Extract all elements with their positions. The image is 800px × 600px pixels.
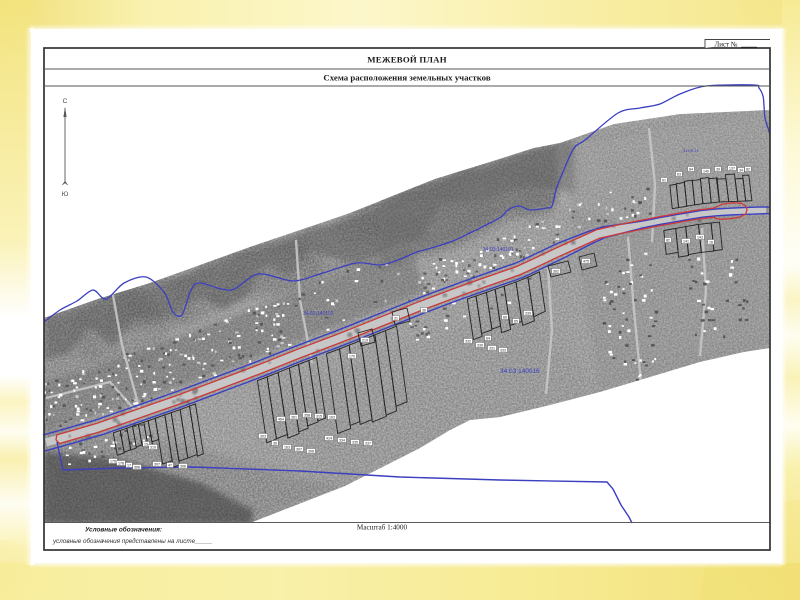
svg-text:332: 332 — [465, 339, 471, 343]
svg-text:С: С — [63, 98, 68, 105]
svg-text:143: 143 — [697, 235, 703, 239]
svg-text:137: 137 — [729, 166, 735, 170]
svg-text:307: 307 — [296, 447, 302, 451]
svg-text:66: 66 — [503, 315, 507, 319]
svg-text:34:03:140101: 34:03:140101 — [483, 247, 514, 253]
svg-text:63: 63 — [677, 172, 681, 176]
svg-text:МЕЖЕВОЙ ПЛАН: МЕЖЕВОЙ ПЛАН — [367, 55, 446, 65]
svg-text:358: 358 — [304, 413, 310, 417]
svg-text:34:03:14: 34:03:14 — [683, 148, 699, 153]
svg-text:306: 306 — [180, 464, 186, 468]
svg-text:163: 163 — [329, 415, 335, 419]
svg-text:337: 337 — [365, 441, 371, 445]
svg-text:34:03:140102: 34:03:140102 — [303, 311, 334, 317]
svg-text:61: 61 — [662, 178, 666, 182]
svg-text:331: 331 — [489, 346, 495, 350]
svg-text:141: 141 — [683, 239, 689, 243]
svg-text:34:03:140016: 34:03:140016 — [500, 368, 540, 375]
svg-text:47: 47 — [168, 463, 172, 467]
svg-text:310: 310 — [150, 445, 156, 449]
svg-text:306: 306 — [308, 449, 314, 453]
svg-text:82: 82 — [746, 167, 750, 171]
svg-text:31: 31 — [394, 316, 398, 320]
svg-text:361: 361 — [291, 415, 297, 419]
svg-text:170: 170 — [349, 354, 355, 358]
svg-text:64: 64 — [486, 336, 490, 340]
svg-text:Лист №: Лист № — [714, 41, 737, 49]
svg-text:39: 39 — [716, 167, 720, 171]
svg-text:84: 84 — [689, 167, 693, 171]
svg-text:140: 140 — [703, 169, 709, 173]
svg-text:335: 335 — [352, 440, 358, 444]
svg-text:178: 178 — [118, 461, 124, 465]
svg-text:219: 219 — [362, 338, 368, 342]
svg-text:15: 15 — [144, 442, 148, 446]
svg-text:36: 36 — [422, 308, 426, 312]
svg-text:Условные обозначения:: Условные обозначения: — [85, 526, 162, 534]
svg-text:163: 163 — [284, 445, 290, 449]
svg-text:306: 306 — [134, 465, 140, 469]
svg-text:65: 65 — [514, 319, 518, 323]
svg-text:17: 17 — [127, 463, 131, 467]
svg-text:464: 464 — [278, 417, 284, 421]
svg-text:333: 333 — [500, 348, 506, 352]
svg-text:36: 36 — [273, 441, 277, 445]
svg-text:307: 307 — [154, 462, 160, 466]
svg-text:34: 34 — [739, 168, 743, 172]
svg-text:175: 175 — [110, 459, 116, 463]
svg-text:82: 82 — [666, 238, 670, 242]
svg-text:334: 334 — [339, 438, 345, 442]
svg-text:303: 303 — [260, 434, 266, 438]
svg-text:330: 330 — [477, 343, 483, 347]
svg-text:475: 475 — [583, 259, 589, 263]
svg-text:Схема расположения земельных у: Схема расположения земельных участков — [323, 73, 490, 83]
svg-text:414: 414 — [326, 436, 332, 440]
svg-text:362: 362 — [553, 269, 559, 273]
svg-text:315: 315 — [316, 414, 322, 418]
svg-text:Ю: Ю — [62, 191, 69, 198]
svg-text:Масштаб 1:4000: Масштаб 1:4000 — [357, 524, 408, 532]
svg-text:условные обозначения представл: условные обозначения представлены на лис… — [52, 537, 213, 545]
svg-text:16: 16 — [709, 240, 713, 244]
svg-text:339: 339 — [525, 311, 531, 315]
